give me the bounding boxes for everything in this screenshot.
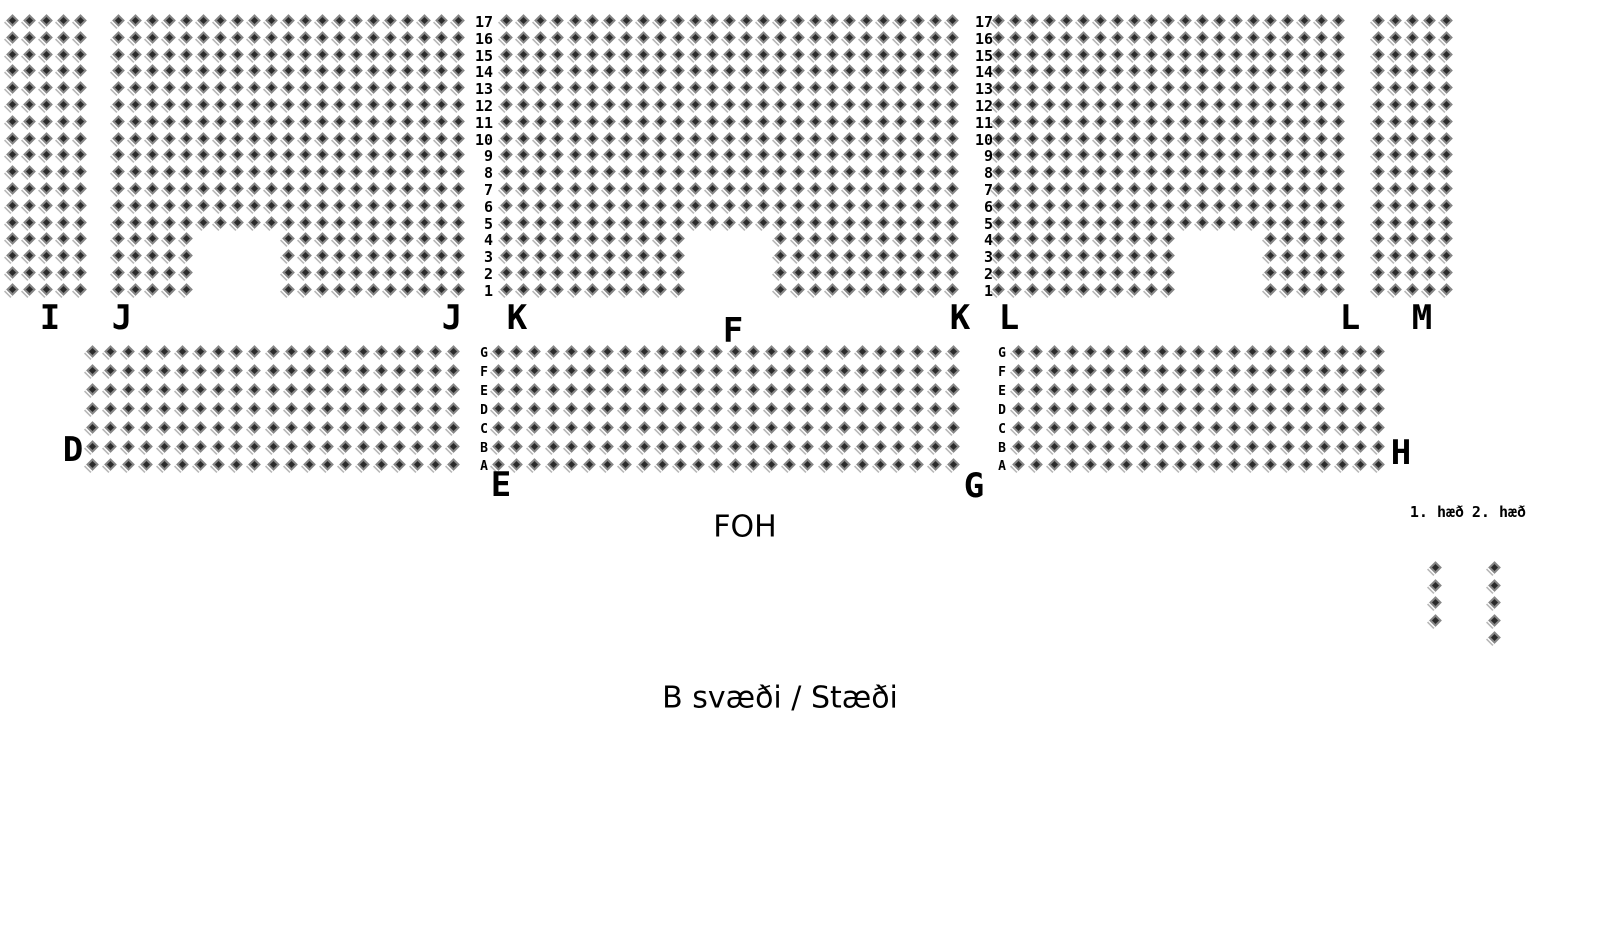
seat-icon[interactable] [1162,31,1175,44]
seat-icon[interactable] [912,266,925,279]
seat-icon[interactable] [1111,216,1124,229]
seat-icon[interactable] [1440,283,1453,296]
seat-icon[interactable] [1336,459,1349,472]
seat-icon[interactable] [1128,216,1141,229]
seat-icon[interactable] [1389,266,1402,279]
seat-icon[interactable] [877,14,890,27]
seat-icon[interactable] [1196,182,1209,195]
seat-icon[interactable] [620,115,633,128]
seat-icon[interactable] [1423,132,1436,145]
seat-icon[interactable] [1111,165,1124,178]
seat-icon[interactable] [586,266,599,279]
seat-icon[interactable] [212,459,225,472]
seat-icon[interactable] [856,421,869,434]
seat-icon[interactable] [1300,345,1313,358]
seat-icon[interactable] [601,459,614,472]
seat-icon[interactable] [895,65,908,78]
seat-icon[interactable] [500,182,513,195]
seat-icon[interactable] [231,149,244,162]
seat-icon[interactable] [1111,65,1124,78]
seat-icon[interactable] [1162,14,1175,27]
seat-icon[interactable] [1372,459,1385,472]
seat-icon[interactable] [146,149,159,162]
seat-icon[interactable] [1264,459,1277,472]
seat-icon[interactable] [912,199,925,212]
seat-icon[interactable] [158,421,171,434]
seat-icon[interactable] [1111,14,1124,27]
seat-icon[interactable] [6,65,19,78]
seat-icon[interactable] [1094,65,1107,78]
seat-icon[interactable] [838,364,851,377]
seat-icon[interactable] [723,14,736,27]
seat-icon[interactable] [180,199,193,212]
seat-icon[interactable] [1102,421,1115,434]
seat-icon[interactable] [163,283,176,296]
seat-icon[interactable] [877,216,890,229]
seat-icon[interactable] [1406,48,1419,61]
seat-icon[interactable] [86,421,99,434]
seat-icon[interactable] [895,98,908,111]
seat-icon[interactable] [654,14,667,27]
seat-icon[interactable] [1196,149,1209,162]
seat-icon[interactable] [197,165,210,178]
seat-icon[interactable] [1066,440,1079,453]
seat-icon[interactable] [350,65,363,78]
seat-icon[interactable] [601,402,614,415]
seat-icon[interactable] [620,440,633,453]
seat-icon[interactable] [1009,81,1022,94]
seat-icon[interactable] [1247,165,1260,178]
seat-icon[interactable] [802,364,815,377]
seat-icon[interactable] [1406,199,1419,212]
seat-icon[interactable] [375,345,388,358]
seat-icon[interactable] [367,216,380,229]
seat-icon[interactable] [603,98,616,111]
seat-icon[interactable] [1094,115,1107,128]
seat-icon[interactable] [1336,421,1349,434]
seat-icon[interactable] [729,459,742,472]
seat-icon[interactable] [1332,249,1345,262]
seat-icon[interactable] [146,115,159,128]
seat-icon[interactable] [265,199,278,212]
seat-icon[interactable] [603,14,616,27]
seat-icon[interactable] [285,440,298,453]
seat-icon[interactable] [265,31,278,44]
seat-icon[interactable] [197,182,210,195]
seat-icon[interactable] [1440,233,1453,246]
seat-icon[interactable] [809,266,822,279]
seat-icon[interactable] [1298,65,1311,78]
seat-icon[interactable] [929,266,942,279]
seat-icon[interactable] [282,249,295,262]
seat-icon[interactable] [1372,165,1385,178]
seat-icon[interactable] [1120,345,1133,358]
seat-icon[interactable] [895,216,908,229]
seat-icon[interactable] [529,459,542,472]
seat-icon[interactable] [1174,402,1187,415]
seat-icon[interactable] [792,115,805,128]
seat-icon[interactable] [947,402,960,415]
seat-icon[interactable] [1423,182,1436,195]
seat-icon[interactable] [895,149,908,162]
seat-icon[interactable] [112,132,125,145]
seat-icon[interactable] [620,182,633,195]
seat-icon[interactable] [214,182,227,195]
seat-icon[interactable] [267,345,280,358]
seat-icon[interactable] [1315,115,1328,128]
seat-icon[interactable] [510,440,523,453]
seat-icon[interactable] [992,98,1005,111]
seat-icon[interactable] [775,81,788,94]
seat-icon[interactable] [500,199,513,212]
seat-icon[interactable] [1246,459,1259,472]
seat-icon[interactable] [1111,81,1124,94]
seat-icon[interactable] [282,48,295,61]
seat-icon[interactable] [321,459,334,472]
seat-icon[interactable] [40,98,53,111]
seat-icon[interactable] [809,182,822,195]
seat-icon[interactable] [783,440,796,453]
seat-icon[interactable] [1246,345,1259,358]
seat-icon[interactable] [357,402,370,415]
seat-icon[interactable] [1009,65,1022,78]
seat-icon[interactable] [1300,459,1313,472]
seat-icon[interactable] [1145,65,1158,78]
seat-icon[interactable] [1332,132,1345,145]
seat-icon[interactable] [534,266,547,279]
seat-icon[interactable] [282,132,295,145]
seat-icon[interactable] [792,132,805,145]
seat-icon[interactable] [1315,65,1328,78]
seat-icon[interactable] [1315,249,1328,262]
seat-icon[interactable] [1406,81,1419,94]
seat-icon[interactable] [1210,421,1223,434]
seat-icon[interactable] [249,440,262,453]
seat-icon[interactable] [357,383,370,396]
seat-icon[interactable] [1300,421,1313,434]
seat-icon[interactable] [248,81,261,94]
seat-icon[interactable] [1318,421,1331,434]
seat-icon[interactable] [1145,132,1158,145]
seat-icon[interactable] [265,132,278,145]
seat-icon[interactable] [672,249,685,262]
seat-icon[interactable] [411,402,424,415]
seat-icon[interactable] [1406,266,1419,279]
seat-icon[interactable] [792,165,805,178]
seat-icon[interactable] [1315,233,1328,246]
seat-icon[interactable] [401,98,414,111]
seat-icon[interactable] [23,249,36,262]
seat-icon[interactable] [129,266,142,279]
seat-icon[interactable] [1406,283,1419,296]
seat-icon[interactable] [418,31,431,44]
seat-icon[interactable] [418,98,431,111]
seat-icon[interactable] [129,216,142,229]
seat-icon[interactable] [176,459,189,472]
seat-icon[interactable] [1012,345,1025,358]
seat-icon[interactable] [316,216,329,229]
seat-icon[interactable] [1488,579,1501,592]
seat-icon[interactable] [492,345,505,358]
seat-icon[interactable] [510,421,523,434]
seat-icon[interactable] [586,115,599,128]
seat-icon[interactable] [877,233,890,246]
seat-icon[interactable] [316,182,329,195]
seat-icon[interactable] [689,115,702,128]
seat-icon[interactable] [929,402,942,415]
seat-icon[interactable] [1264,266,1277,279]
seat-icon[interactable] [265,14,278,27]
seat-icon[interactable] [86,440,99,453]
seat-icon[interactable] [401,65,414,78]
seat-icon[interactable] [197,48,210,61]
seat-icon[interactable] [265,81,278,94]
seat-icon[interactable] [367,165,380,178]
seat-icon[interactable] [176,402,189,415]
seat-icon[interactable] [86,364,99,377]
seat-icon[interactable] [992,149,1005,162]
seat-icon[interactable] [1440,165,1453,178]
seat-icon[interactable] [569,182,582,195]
seat-icon[interactable] [1060,149,1073,162]
seat-icon[interactable] [1043,182,1056,195]
seat-icon[interactable] [740,165,753,178]
seat-icon[interactable] [303,402,316,415]
seat-icon[interactable] [547,383,560,396]
seat-icon[interactable] [1282,383,1295,396]
seat-icon[interactable] [1423,48,1436,61]
seat-icon[interactable] [706,199,719,212]
seat-icon[interactable] [1120,459,1133,472]
seat-icon[interactable] [1009,249,1022,262]
seat-icon[interactable] [265,98,278,111]
seat-icon[interactable] [249,402,262,415]
seat-icon[interactable] [158,345,171,358]
seat-icon[interactable] [992,115,1005,128]
seat-icon[interactable] [1009,283,1022,296]
seat-icon[interactable] [367,266,380,279]
seat-icon[interactable] [212,364,225,377]
seat-icon[interactable] [586,199,599,212]
seat-icon[interactable] [212,383,225,396]
seat-icon[interactable] [1230,65,1243,78]
seat-icon[interactable] [1213,31,1226,44]
seat-icon[interactable] [1043,165,1056,178]
seat-icon[interactable] [946,266,959,279]
seat-icon[interactable] [583,383,596,396]
seat-icon[interactable] [1145,48,1158,61]
seat-icon[interactable] [1196,31,1209,44]
seat-icon[interactable] [146,182,159,195]
seat-icon[interactable] [1156,364,1169,377]
seat-icon[interactable] [146,98,159,111]
seat-icon[interactable] [129,14,142,27]
seat-icon[interactable] [1043,233,1056,246]
seat-icon[interactable] [689,48,702,61]
seat-icon[interactable] [248,14,261,27]
seat-icon[interactable] [1298,48,1311,61]
seat-icon[interactable] [792,182,805,195]
seat-icon[interactable] [248,165,261,178]
seat-icon[interactable] [1281,149,1294,162]
seat-icon[interactable] [534,132,547,145]
seat-icon[interactable] [1372,421,1385,434]
seat-icon[interactable] [1066,364,1079,377]
seat-icon[interactable] [912,233,925,246]
seat-icon[interactable] [1488,596,1501,609]
seat-icon[interactable] [1389,249,1402,262]
seat-icon[interactable] [654,149,667,162]
seat-icon[interactable] [654,233,667,246]
seat-icon[interactable] [1230,115,1243,128]
seat-icon[interactable] [367,249,380,262]
seat-icon[interactable] [1440,48,1453,61]
seat-icon[interactable] [180,31,193,44]
seat-icon[interactable] [529,364,542,377]
seat-icon[interactable] [893,421,906,434]
seat-icon[interactable] [569,249,582,262]
seat-icon[interactable] [517,81,530,94]
seat-icon[interactable] [333,81,346,94]
seat-icon[interactable] [212,402,225,415]
seat-icon[interactable] [692,421,705,434]
seat-icon[interactable] [672,98,685,111]
seat-icon[interactable] [654,199,667,212]
seat-icon[interactable] [1281,266,1294,279]
seat-icon[interactable] [706,14,719,27]
seat-icon[interactable] [1332,165,1345,178]
seat-icon[interactable] [792,149,805,162]
seat-icon[interactable] [1060,233,1073,246]
seat-icon[interactable] [316,149,329,162]
seat-icon[interactable] [552,132,565,145]
seat-icon[interactable] [104,383,117,396]
seat-icon[interactable] [1264,48,1277,61]
seat-icon[interactable] [1264,440,1277,453]
seat-icon[interactable] [729,421,742,434]
seat-icon[interactable] [517,182,530,195]
seat-icon[interactable] [1336,440,1349,453]
seat-icon[interactable] [620,65,633,78]
seat-icon[interactable] [1138,364,1151,377]
seat-icon[interactable] [197,98,210,111]
seat-icon[interactable] [620,165,633,178]
seat-icon[interactable] [401,283,414,296]
seat-icon[interactable] [637,266,650,279]
seat-icon[interactable] [350,98,363,111]
seat-icon[interactable] [74,31,87,44]
seat-icon[interactable] [911,402,924,415]
seat-icon[interactable] [534,149,547,162]
seat-icon[interactable] [517,216,530,229]
seat-icon[interactable] [1354,402,1367,415]
seat-icon[interactable] [586,233,599,246]
seat-icon[interactable] [1264,199,1277,212]
seat-icon[interactable] [637,81,650,94]
seat-icon[interactable] [565,383,578,396]
seat-icon[interactable] [775,149,788,162]
seat-icon[interactable] [1174,459,1187,472]
seat-icon[interactable] [711,345,724,358]
seat-icon[interactable] [435,81,448,94]
seat-icon[interactable] [1145,199,1158,212]
seat-icon[interactable] [586,216,599,229]
seat-icon[interactable] [180,266,193,279]
seat-icon[interactable] [6,31,19,44]
seat-icon[interactable] [1264,182,1277,195]
seat-icon[interactable] [23,132,36,145]
seat-icon[interactable] [435,48,448,61]
seat-icon[interactable] [729,440,742,453]
seat-icon[interactable] [6,165,19,178]
seat-icon[interactable] [637,115,650,128]
seat-icon[interactable] [265,65,278,78]
seat-icon[interactable] [946,98,959,111]
seat-icon[interactable] [1354,459,1367,472]
seat-icon[interactable] [672,115,685,128]
seat-icon[interactable] [1264,216,1277,229]
seat-icon[interactable] [285,383,298,396]
seat-icon[interactable] [1162,199,1175,212]
seat-icon[interactable] [321,383,334,396]
seat-icon[interactable] [1264,383,1277,396]
seat-icon[interactable] [711,383,724,396]
seat-icon[interactable] [112,14,125,27]
seat-icon[interactable] [180,233,193,246]
seat-icon[interactable] [529,383,542,396]
seat-icon[interactable] [1145,115,1158,128]
seat-icon[interactable] [1372,233,1385,246]
seat-icon[interactable] [672,165,685,178]
seat-icon[interactable] [1026,283,1039,296]
seat-icon[interactable] [929,364,942,377]
seat-icon[interactable] [418,165,431,178]
seat-icon[interactable] [163,98,176,111]
seat-icon[interactable] [1145,182,1158,195]
seat-icon[interactable] [1026,216,1039,229]
seat-icon[interactable] [249,345,262,358]
seat-icon[interactable] [1213,14,1226,27]
seat-icon[interactable] [23,14,36,27]
seat-icon[interactable] [1111,283,1124,296]
seat-icon[interactable] [447,440,460,453]
seat-icon[interactable] [843,65,856,78]
seat-icon[interactable] [1264,165,1277,178]
seat-icon[interactable] [1145,249,1158,262]
seat-icon[interactable] [1213,149,1226,162]
seat-icon[interactable] [1156,402,1169,415]
seat-icon[interactable] [1281,132,1294,145]
seat-icon[interactable] [57,165,70,178]
seat-icon[interactable] [401,81,414,94]
seat-icon[interactable] [723,149,736,162]
seat-icon[interactable] [1332,31,1345,44]
seat-icon[interactable] [1156,421,1169,434]
seat-icon[interactable] [1298,132,1311,145]
seat-icon[interactable] [500,48,513,61]
seat-icon[interactable] [285,402,298,415]
seat-icon[interactable] [231,402,244,415]
seat-icon[interactable] [500,132,513,145]
seat-icon[interactable] [146,48,159,61]
seat-icon[interactable] [843,283,856,296]
seat-icon[interactable] [1179,149,1192,162]
seat-icon[interactable] [350,283,363,296]
seat-icon[interactable] [129,165,142,178]
seat-icon[interactable] [792,216,805,229]
seat-icon[interactable] [1060,165,1073,178]
seat-icon[interactable] [316,81,329,94]
